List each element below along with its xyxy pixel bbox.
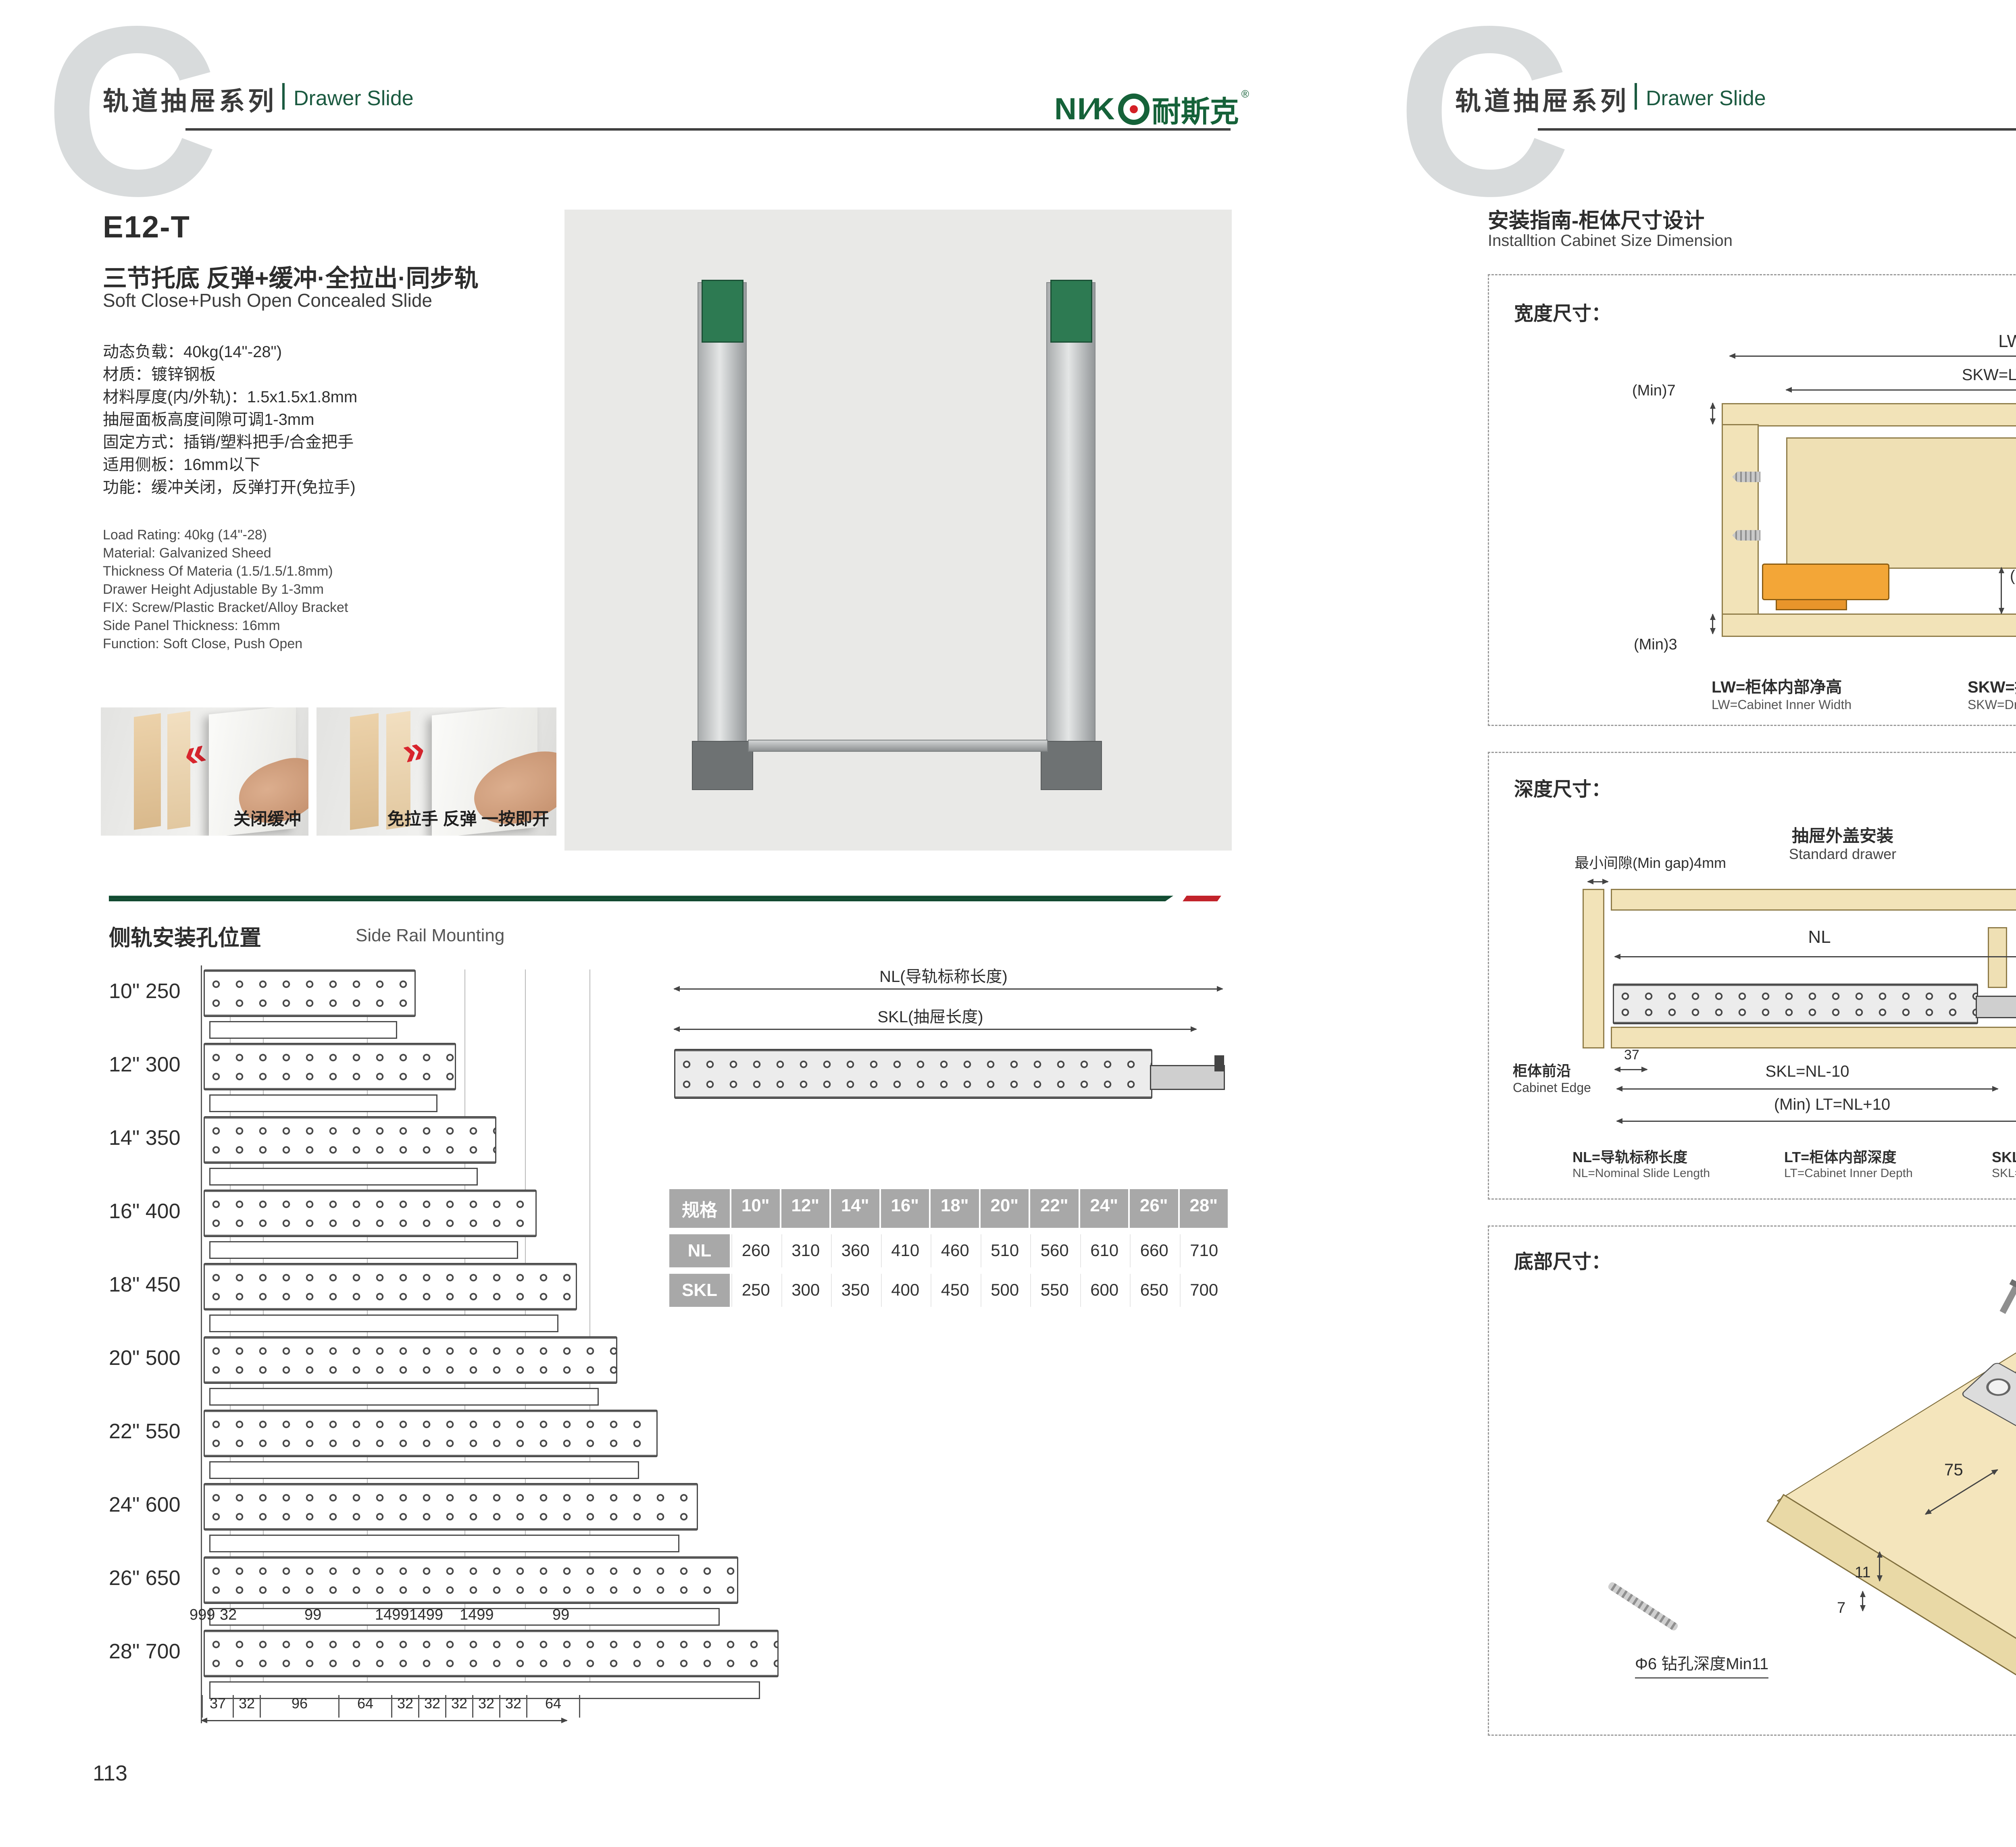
registered-mark: ® [1241, 88, 1249, 100]
rail-flange [209, 1461, 639, 1479]
rail-size-label: 24" 600 [109, 1493, 201, 1517]
skw-label: SKW=LW-42 [1786, 366, 2016, 384]
cabinet-top-panel [1722, 403, 2016, 426]
spec-line: 材料厚度(内/外轨)：1.5x1.5x1.8mm [103, 386, 357, 408]
nl-dim-line [674, 988, 1223, 990]
table-cell: 500 [981, 1274, 1029, 1307]
depth-section-box [1488, 752, 2016, 1200]
product-model: E12-T [103, 210, 190, 245]
series-title-cn-right: 轨道抽屉系列 [1455, 81, 1629, 118]
legend-cn: SKW=抽屉宽度 [1968, 674, 2016, 697]
table-cell: 250 [731, 1274, 780, 1307]
table-cell: 20" [981, 1189, 1029, 1228]
width-section-label: 宽度尺寸： [1514, 297, 1611, 326]
legend-en: SKL=Drawer Length [1992, 1167, 2016, 1180]
rail-size-label: 28" 700 [109, 1639, 201, 1664]
legend-en: LT=Cabinet Inner Depth [1784, 1167, 1913, 1180]
rail-flange [209, 1241, 518, 1259]
header-rule-right [1538, 128, 2016, 131]
bottom-dim-cell: 96 [260, 1695, 338, 1718]
edge-cn: 柜体前沿 [1513, 1059, 1591, 1080]
nl-dim-label: NL(导轨标称长度) [669, 963, 1218, 987]
dlegend-skl: SKL=抽屉长度 SKL=Drawer Length [1992, 1146, 2016, 1180]
table-cell: 14" [831, 1189, 879, 1228]
cabinet-top [1611, 889, 2016, 911]
min3-dim [1712, 614, 1713, 634]
drawer-side-panel [167, 711, 190, 830]
table-cell: 24" [1080, 1189, 1129, 1228]
series-title-en-right: Drawer Slide [1646, 86, 1766, 110]
legend-cn: SKL=抽屉长度 [1992, 1146, 2016, 1167]
pitch-dim-label: 99 [304, 1606, 321, 1624]
legend-en: NL=Nominal Slide Length [1572, 1167, 1710, 1180]
d75-label: 75 [1944, 1460, 1963, 1479]
photo-soft-close: « 关闭缓冲 [101, 707, 308, 836]
lt-dim [1617, 1121, 2016, 1122]
table-cell: 700 [1180, 1274, 1228, 1307]
rail-size-label: 16" 400 [109, 1199, 201, 1223]
slide-assembly-left [1762, 564, 1889, 600]
skl-dim-line [674, 1029, 1196, 1030]
rail-foot [1041, 741, 1102, 790]
rail-flange [209, 1094, 437, 1112]
bottom-dim-cell: 32 [472, 1695, 499, 1718]
table-cell: 22" [1030, 1189, 1079, 1228]
photo-caption: 免拉手 反弹 一按即开 [387, 805, 549, 830]
specs-en: Load Rating: 40kg (14"-28)Material: Galv… [103, 526, 348, 653]
spec-line: Load Rating: 40kg (14"-28) [103, 526, 348, 544]
cabinet-left-wall [1722, 424, 1759, 616]
table-cell: 710 [1180, 1234, 1228, 1267]
rail-size-label: 26" 650 [109, 1566, 201, 1590]
min275-label: (Min)27.5 [2010, 568, 2016, 585]
bottom-dim-cell: 32 [445, 1695, 472, 1718]
standard-title-en: Standard drawer [1714, 846, 1972, 863]
pitch-dim-label: 99 [552, 1606, 569, 1624]
specs-cn: 动态负载：40kg(14"-28")材质：镀锌钢板材料厚度(内/外轨)：1.5x… [103, 341, 357, 499]
product-title-cn: 三节托底 反弹+缓冲·全拉出·同步轨 [103, 259, 479, 294]
legend-en: SKW=Drawer Width [1968, 697, 2016, 712]
rail-drawing [204, 1043, 456, 1090]
header-separator [282, 83, 285, 110]
min7-dim [1712, 403, 1713, 424]
legend-lw: LW=柜体内部净高 LW=Cabinet Inner Width [1712, 674, 1851, 712]
spec-line: Function: Soft Close, Push Open [103, 635, 348, 653]
rail-drawing [204, 1410, 658, 1457]
rail-drawing [204, 1483, 698, 1531]
min-gap-dim [1588, 881, 1608, 882]
series-title-cn: 轨道抽屉系列 [103, 81, 277, 118]
min275-dim [2001, 568, 2002, 614]
photo-caption: 关闭缓冲 [233, 805, 301, 830]
table-cell: 10" [731, 1189, 780, 1228]
bottom-dim-cell: 32 [418, 1695, 445, 1718]
cabinet-edge-label: 柜体前沿 Cabinet Edge [1513, 1059, 1591, 1095]
skl-dim-label: SKL(抽屉长度) [669, 1004, 1191, 1027]
rail-drawing [204, 1630, 779, 1677]
slide-rail-side [1613, 984, 1978, 1024]
legend-cn: LW=柜体内部净高 [1712, 674, 1851, 697]
dlegend-nl: NL=导轨标称长度 NL=Nominal Slide Length [1572, 1146, 1710, 1180]
table-cell: 12" [781, 1189, 830, 1228]
d37-label: 37 [1624, 1047, 1639, 1063]
table-cell: 18" [931, 1189, 979, 1228]
bottom-dim-cell: 32 [233, 1695, 260, 1718]
product-title-en: Soft Close+Push Open Concealed Slide [103, 289, 432, 311]
logo-latin: NI∕K [1054, 92, 1116, 127]
bottom-dim-cell: 37 [202, 1695, 233, 1718]
legend-en: LW=Cabinet Inner Width [1712, 697, 1851, 712]
nl-label: NL [1615, 927, 2016, 947]
bottom-section-label: 底部尺寸： [1514, 1246, 1611, 1274]
bottom-dim-line [202, 1720, 567, 1721]
drawer-back-panel [1786, 437, 2016, 569]
min7-label: (Min)7 [1632, 382, 1676, 399]
catalog-spread: C 轨道抽屉系列 Drawer Slide NI∕K 耐斯克 ® C 轨道抽屉系… [0, 0, 2016, 1847]
rail-foot [692, 741, 753, 790]
edge-en: Cabinet Edge [1513, 1080, 1591, 1095]
pitch-dim-label: 32 [220, 1606, 237, 1624]
rail-drawing [204, 1190, 537, 1237]
rail-flange [209, 1021, 397, 1039]
legend-cn: NL=导轨标称长度 [1572, 1146, 1710, 1167]
lw-dim-line [1730, 356, 2016, 357]
logo-cn: 耐斯克 [1152, 88, 1239, 130]
standard-title-cn: 抽屉外盖安装 [1714, 822, 1972, 847]
rail-drawing [204, 1116, 496, 1164]
table-cell: 660 [1130, 1234, 1178, 1267]
table-cell: 26" [1130, 1189, 1178, 1228]
pitch-dim-label: 999 [190, 1606, 215, 1624]
spec-line: 固定方式：插销/塑料把手/合金把手 [103, 431, 357, 453]
table-cell: 360 [831, 1234, 879, 1267]
spec-line: Side Panel Thickness: 16mm [103, 617, 348, 635]
divider-green [109, 896, 1173, 901]
table-cell: NL [669, 1234, 730, 1267]
slide-rail-right [1046, 282, 1095, 788]
rail-drawing [204, 1556, 738, 1604]
pitch-dim-label: 1499 [460, 1606, 494, 1624]
cabinet-bottom [1611, 1027, 2016, 1048]
table-cell: 16" [881, 1189, 929, 1228]
table-cell: 260 [731, 1234, 780, 1267]
rail-flange [209, 1168, 478, 1186]
bottom-dim-cell: 64 [526, 1695, 580, 1718]
d11-dim [1879, 1552, 1880, 1581]
table-cell: 560 [1030, 1234, 1079, 1267]
green-clip-icon [1050, 280, 1092, 343]
table-cell: 350 [831, 1274, 879, 1307]
legend-skw: SKW=抽屉宽度 SKW=Drawer Width [1968, 674, 2016, 712]
table-cell: 规格 [669, 1189, 730, 1228]
table-cell: 410 [881, 1234, 929, 1267]
skw-dim-line [1786, 389, 2016, 391]
product-photo [564, 210, 1232, 851]
side-rail-title-cn: 侧轨安装孔位置 [109, 920, 261, 952]
rail-drawing [204, 1263, 577, 1310]
table-cell: 460 [931, 1234, 979, 1267]
screw-icon [1732, 530, 1760, 541]
table-cell: 610 [1080, 1234, 1129, 1267]
rail-size-label: 20" 500 [109, 1346, 201, 1370]
sync-rod [748, 740, 1048, 752]
rail-flange [209, 1315, 558, 1332]
table-cell: 550 [1030, 1274, 1079, 1307]
bottom-dim-cell: 32 [499, 1695, 526, 1718]
spec-line: Material: Galvanized Sheed [103, 544, 348, 562]
skl-dim [1617, 1088, 1998, 1090]
min3-label: (Min)3 [1634, 636, 1677, 653]
table-cell: 310 [781, 1234, 830, 1267]
table-cell: 650 [1130, 1274, 1178, 1307]
rail-size-label: 12" 300 [109, 1052, 201, 1077]
spec-line: 动态负载：40kg(14"-28") [103, 341, 357, 363]
green-clip-icon [702, 280, 744, 343]
slide-rail-ext [1976, 996, 2016, 1018]
table-cell: 400 [881, 1274, 929, 1307]
rail-size-label: 14" 350 [109, 1126, 201, 1150]
size-table: 规格10"12"14"16"18"20"22"24"26"28"NL260310… [669, 1189, 1228, 1307]
drawer-front-overlay [1583, 889, 1604, 1048]
min-gap-label: 最小间隙(Min gap)4mm [1574, 851, 1726, 872]
drill-note: Φ6 钻孔深度Min11 [1635, 1651, 1768, 1679]
bottom-dim-cell: 32 [391, 1695, 418, 1718]
table-cell: 600 [1080, 1274, 1129, 1307]
d7-dim [1862, 1591, 1863, 1611]
drawer-side-panel [134, 713, 161, 830]
rail-flange [209, 1388, 599, 1406]
spec-line: 功能：缓冲关闭，反弹打开(免拉手) [103, 476, 357, 499]
spec-line: 抽屉面板高度间隙可调1-3mm [103, 408, 357, 431]
table-cell: 450 [931, 1274, 979, 1307]
rail-drawing [204, 969, 416, 1017]
nl-dim [1615, 956, 2016, 957]
table-cell: 510 [981, 1234, 1029, 1267]
spec-line: 适用侧板：16mm以下 [103, 453, 357, 476]
legend-cn: LT=柜体内部深度 [1784, 1146, 1913, 1167]
d7-label: 7 [1837, 1599, 1845, 1617]
spec-line: Thickness Of Materia (1.5/1.5/1.8mm) [103, 562, 348, 580]
rail-size-label: 10" 250 [109, 979, 201, 1003]
spec-line: FIX: Screw/Plastic Bracket/Alloy Bracket [103, 599, 348, 617]
divider-red [1183, 896, 1221, 901]
install-title-cn: 安装指南-柜体尺寸设计 [1488, 204, 1704, 234]
rail-size-label: 22" 550 [109, 1419, 201, 1443]
rail-size-label: 18" 450 [109, 1273, 201, 1297]
nl-skl-diagram: NL(导轨标称长度) SKL(抽屉长度) [669, 963, 1228, 1133]
skl-label: SKL=NL-10 [1617, 1063, 1998, 1081]
spec-line: Drawer Height Adjustable By 1-3mm [103, 580, 348, 599]
lw-label: LW [1730, 331, 2016, 352]
d11-label: 11 [1855, 1564, 1870, 1581]
drawer-side-panel [350, 713, 379, 830]
lt-label: (Min) LT=NL+10 [1617, 1096, 2016, 1114]
install-title-en: Installtion Cabinet Size Dimension [1488, 232, 1733, 250]
page-number-left: 113 [93, 1761, 127, 1786]
table-cell: SKL [669, 1274, 730, 1307]
table-cell: 28" [1180, 1189, 1228, 1228]
header-separator-right [1635, 83, 1637, 110]
depth-section-label: 深度尺寸： [1514, 773, 1611, 801]
screw-icon [1732, 472, 1760, 482]
spec-line: 材质：镀锌钢板 [103, 363, 357, 386]
pitch-dim-label: 14991499 [375, 1606, 443, 1624]
rail-body [674, 1049, 1152, 1099]
dlegend-lt: LT=柜体内部深度 LT=Cabinet Inner Depth [1784, 1146, 1913, 1180]
side-rail-title-en: Side Rail Mounting [356, 926, 504, 946]
nisko-logo: NI∕K 耐斯克 ® [1054, 88, 1249, 130]
logo-o-icon [1118, 94, 1150, 125]
table-cell: 300 [781, 1274, 830, 1307]
rail-flange [209, 1535, 679, 1552]
series-title-en: Drawer Slide [294, 86, 414, 110]
bottom-dimensions: 37329664323232323264 [202, 1695, 580, 1718]
rail-extension [1150, 1065, 1225, 1090]
bottom-dim-cell: 64 [338, 1695, 391, 1718]
photo-push-open: » 免拉手 反弹 一按即开 [317, 707, 556, 836]
cabinet-bottom-panel [1722, 614, 2016, 637]
rail-drawing [204, 1336, 617, 1384]
rail-hook [1214, 1055, 1224, 1071]
slide-rail-left [698, 282, 747, 788]
